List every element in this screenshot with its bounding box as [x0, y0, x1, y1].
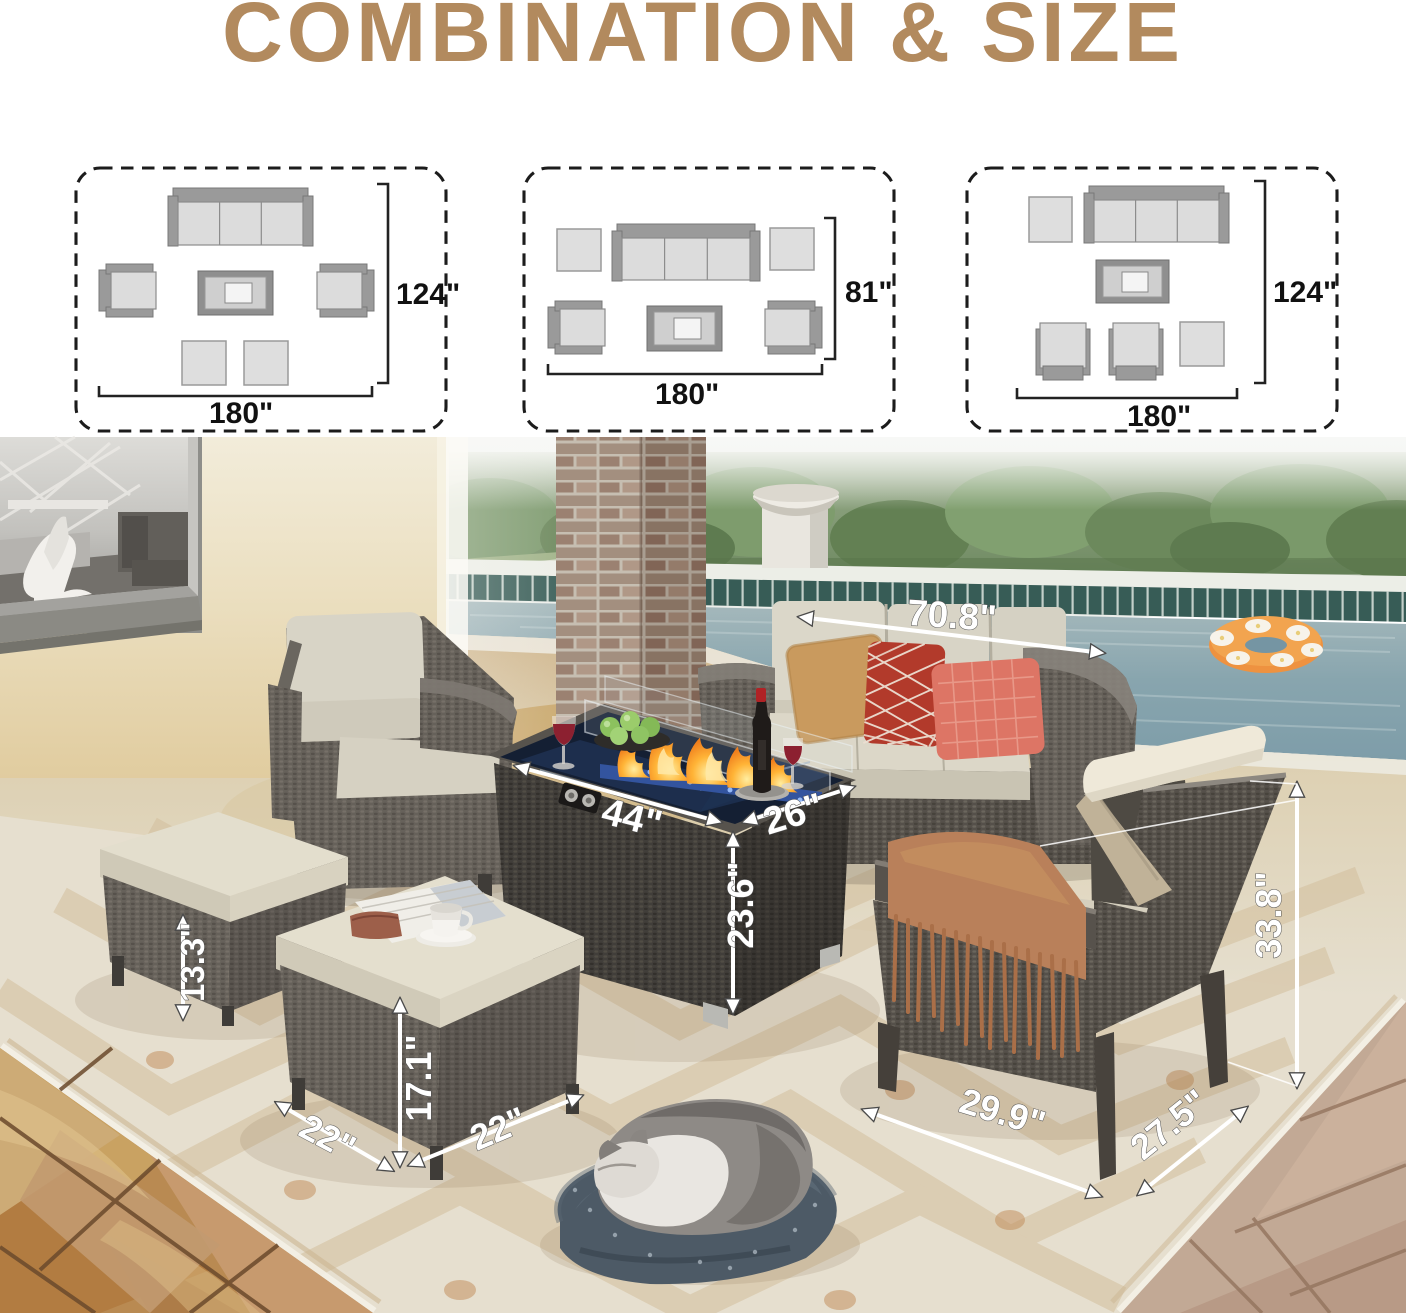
svg-text:124": 124"	[1273, 276, 1337, 309]
svg-text:23.6": 23.6"	[720, 861, 761, 948]
svg-text:180": 180"	[1127, 400, 1191, 433]
svg-text:124": 124"	[396, 278, 460, 311]
svg-text:33.8": 33.8"	[1248, 871, 1289, 958]
svg-text:13.3": 13.3"	[174, 922, 211, 1002]
svg-text:17.1": 17.1"	[398, 1034, 439, 1121]
svg-text:81": 81"	[845, 276, 893, 309]
svg-text:180": 180"	[209, 397, 273, 430]
svg-text:180": 180"	[655, 378, 719, 411]
svg-text:70.8": 70.8"	[906, 592, 998, 639]
